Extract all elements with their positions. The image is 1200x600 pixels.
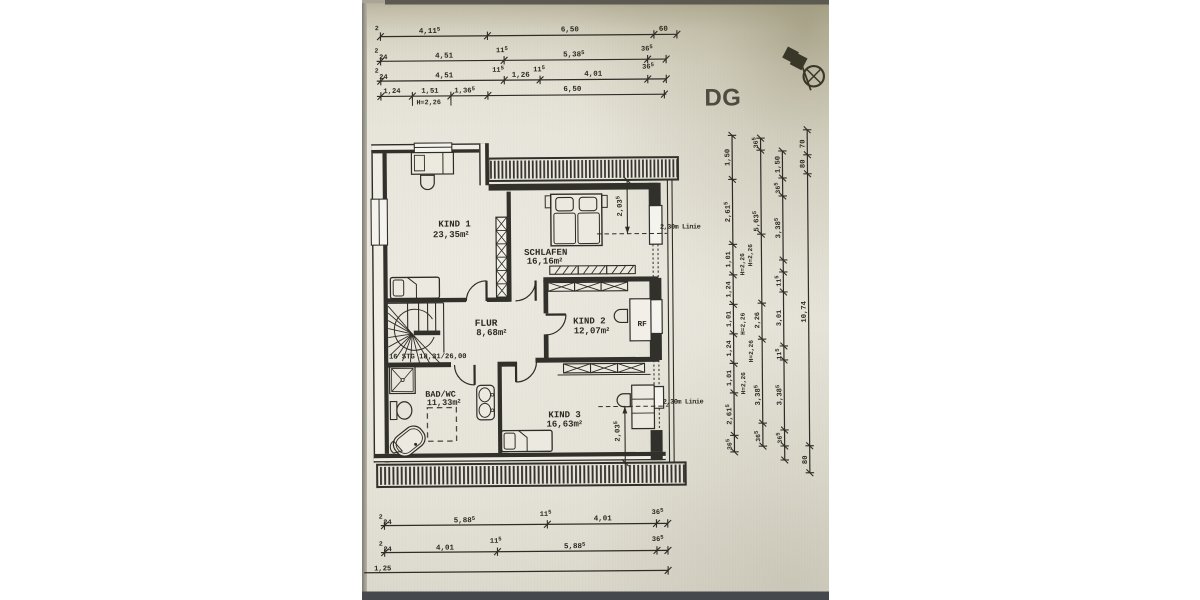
svg-text:2,30m Linie: 2,30m Linie bbox=[660, 223, 701, 231]
svg-text:2: 2 bbox=[375, 48, 379, 55]
svg-text:24: 24 bbox=[383, 519, 391, 527]
svg-text:1,51: 1,51 bbox=[421, 88, 439, 96]
svg-text:80: 80 bbox=[800, 159, 808, 168]
svg-text:12,07m2: 12,07m2 bbox=[574, 326, 610, 336]
svg-text:16,16m2: 16,16m2 bbox=[527, 256, 563, 266]
svg-text:16,63m2: 16,63m2 bbox=[546, 419, 582, 429]
svg-text:8,68m2: 8,68m2 bbox=[476, 328, 507, 338]
svg-text:1,01: 1,01 bbox=[726, 311, 734, 327]
svg-text:1,25: 1,25 bbox=[374, 565, 391, 573]
svg-text:KIND 2: KIND 2 bbox=[573, 316, 605, 326]
svg-text:24: 24 bbox=[383, 546, 391, 554]
svg-text:60: 60 bbox=[659, 26, 669, 34]
svg-text:H=2,26: H=2,26 bbox=[740, 312, 747, 335]
svg-text:2,26: 2,26 bbox=[754, 312, 762, 328]
svg-text:4,01: 4,01 bbox=[584, 71, 603, 79]
svg-text:11,33m2: 11,33m2 bbox=[427, 398, 462, 408]
svg-text:1,01: 1,01 bbox=[726, 370, 734, 386]
svg-text:1,26: 1,26 bbox=[512, 72, 531, 80]
svg-text:1,24: 1,24 bbox=[383, 88, 401, 96]
svg-text:2: 2 bbox=[379, 541, 383, 548]
svg-text:16 STG 18,31/26,00: 16 STG 18,31/26,00 bbox=[389, 353, 467, 362]
svg-text:4,01: 4,01 bbox=[436, 545, 455, 553]
svg-text:RF: RF bbox=[637, 321, 647, 329]
svg-text:H=2,26: H=2,26 bbox=[748, 340, 755, 363]
svg-text:6,50: 6,50 bbox=[561, 26, 580, 34]
svg-text:1,50: 1,50 bbox=[775, 156, 783, 173]
svg-text:1,24: 1,24 bbox=[725, 281, 733, 297]
svg-text:80: 80 bbox=[802, 455, 810, 464]
svg-text:1,50: 1,50 bbox=[724, 149, 732, 166]
svg-text:4,51: 4,51 bbox=[435, 72, 454, 80]
svg-text:H=2,26: H=2,26 bbox=[747, 244, 754, 267]
svg-text:KIND 1: KIND 1 bbox=[438, 219, 471, 229]
svg-text:1,01: 1,01 bbox=[725, 251, 733, 267]
svg-text:6,50: 6,50 bbox=[563, 86, 582, 94]
svg-text:2: 2 bbox=[379, 514, 383, 521]
svg-text:H=2,26: H=2,26 bbox=[740, 372, 747, 395]
svg-text:3,01: 3,01 bbox=[776, 310, 784, 326]
svg-text:2: 2 bbox=[375, 25, 379, 32]
svg-text:70: 70 bbox=[799, 139, 807, 148]
svg-text:H=2,26: H=2,26 bbox=[739, 253, 746, 276]
svg-text:4,51: 4,51 bbox=[435, 53, 454, 61]
svg-text:24: 24 bbox=[379, 74, 387, 82]
svg-text:4,01: 4,01 bbox=[594, 515, 613, 523]
svg-text:10,74: 10,74 bbox=[801, 300, 809, 322]
svg-text:2,30m Linie: 2,30m Linie bbox=[663, 398, 704, 406]
svg-text:1,24: 1,24 bbox=[726, 340, 734, 356]
svg-text:24: 24 bbox=[379, 54, 387, 62]
svg-text:DG: DG bbox=[704, 84, 741, 111]
svg-text:2: 2 bbox=[375, 68, 379, 75]
svg-text:23,35m2: 23,35m2 bbox=[433, 230, 469, 240]
svg-text:H=2,26: H=2,26 bbox=[416, 99, 441, 107]
